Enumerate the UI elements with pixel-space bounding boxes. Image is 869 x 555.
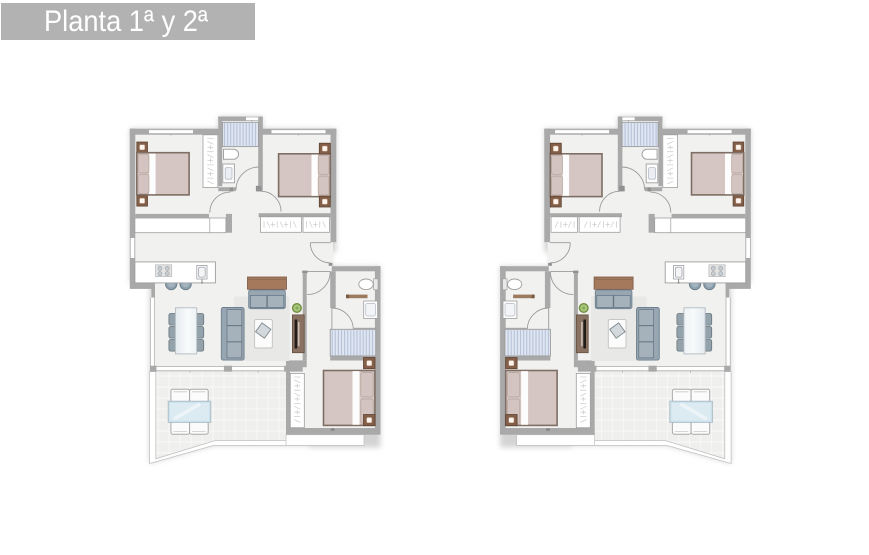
- svg-text:Planta 1ª y 2ª: Planta 1ª y 2ª: [44, 5, 209, 38]
